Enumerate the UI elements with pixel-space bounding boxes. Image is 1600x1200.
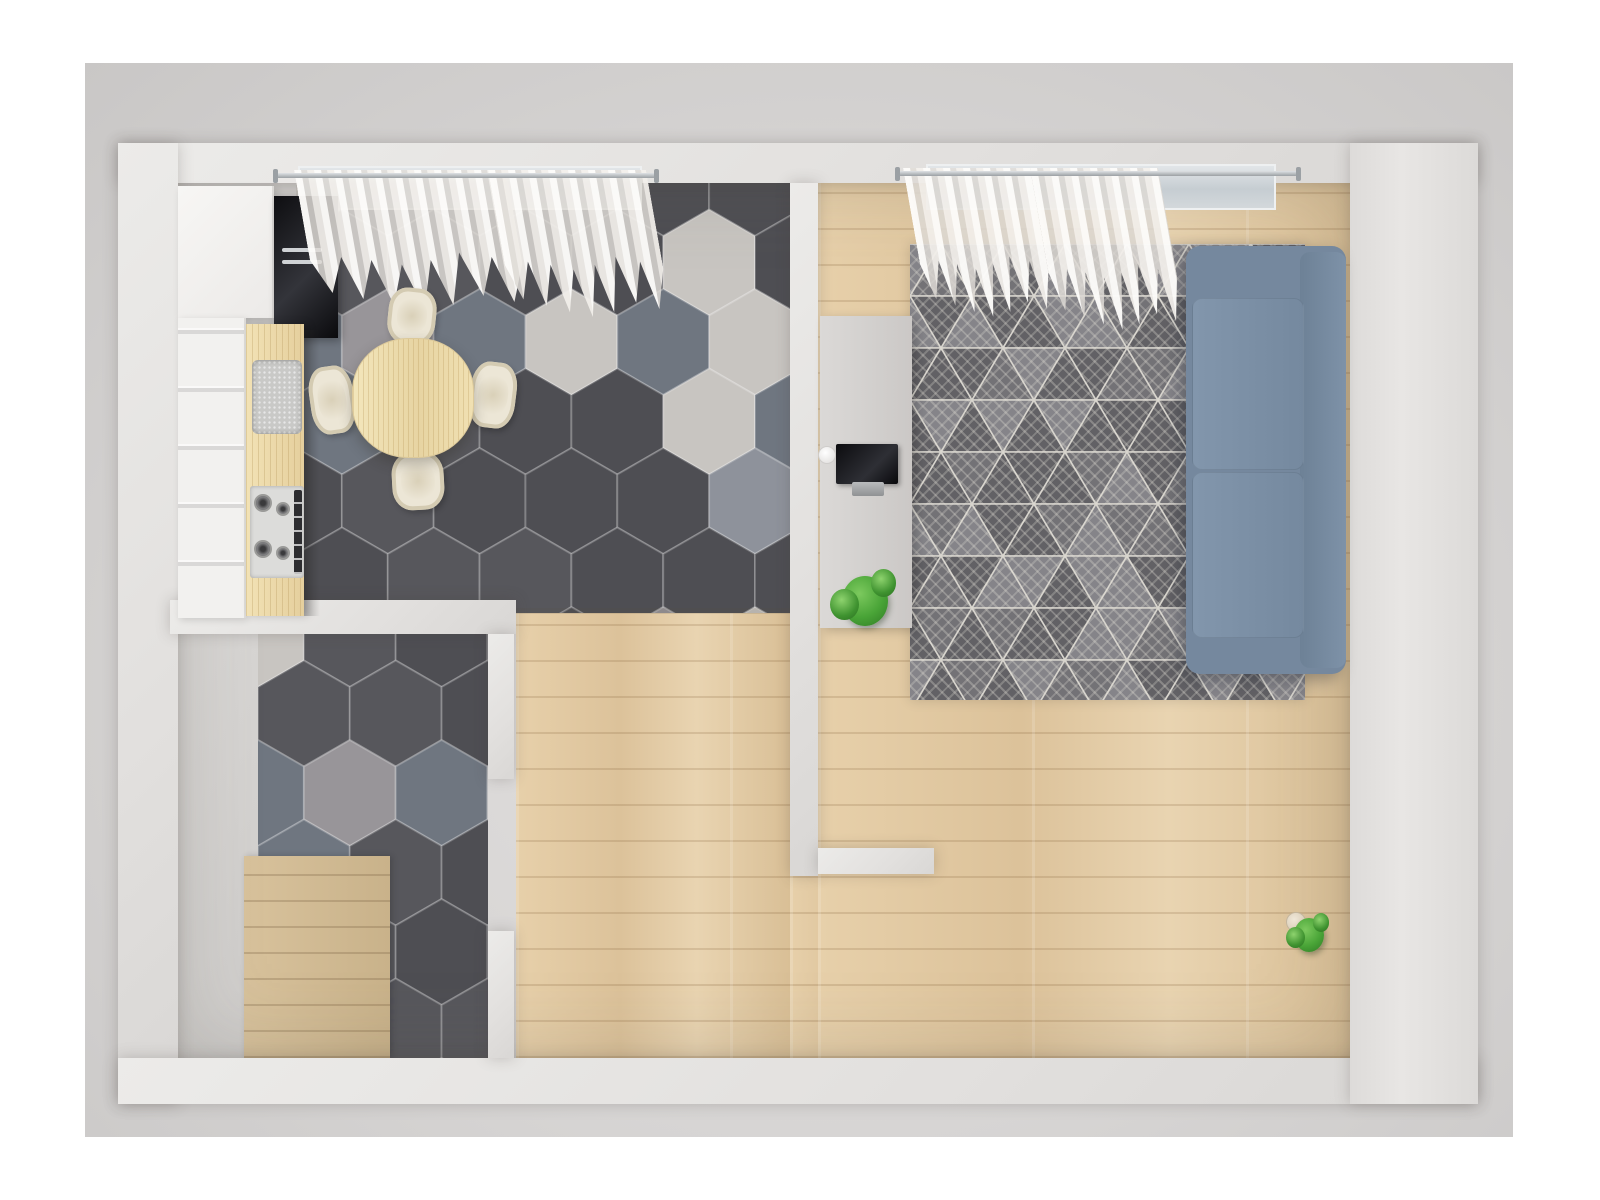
sofa-seat-cushion bbox=[1192, 472, 1304, 638]
gas-hob bbox=[250, 486, 304, 578]
shower-wood-floor bbox=[244, 856, 390, 1058]
burner bbox=[276, 502, 290, 516]
wall-bathroom-right-lower bbox=[488, 931, 514, 1058]
hallway-wood-floor bbox=[516, 613, 790, 1058]
wall-left bbox=[118, 143, 178, 1104]
floor-plan bbox=[0, 0, 1600, 1200]
dining-table bbox=[352, 338, 474, 458]
console-plant bbox=[842, 576, 888, 626]
burner bbox=[254, 540, 272, 558]
burner bbox=[276, 546, 290, 560]
tv-mount bbox=[852, 482, 884, 496]
kitchen-base-cabinets bbox=[178, 318, 246, 618]
dining-chair-bottom bbox=[391, 451, 446, 512]
floor-transition-strip bbox=[516, 608, 790, 614]
wall-bottom bbox=[118, 1058, 1478, 1104]
kitchen-sink bbox=[252, 360, 302, 434]
sofa-backrest bbox=[1300, 252, 1346, 668]
wall-hall-stub bbox=[818, 848, 934, 874]
hob-control-panel bbox=[294, 490, 302, 574]
living-curtain-rod bbox=[898, 171, 1298, 176]
burner bbox=[254, 494, 272, 512]
sofa-seat-cushion bbox=[1192, 298, 1304, 470]
kitchen-tall-cabinet bbox=[178, 186, 274, 318]
wall-bathroom-right-upper bbox=[488, 634, 514, 779]
wall-kitchen-living-divider bbox=[790, 183, 818, 876]
tv bbox=[836, 444, 898, 484]
kitchen-curtain-rod bbox=[276, 173, 656, 178]
desk-plant bbox=[1294, 918, 1324, 952]
wall-right bbox=[1350, 143, 1478, 1104]
round-speaker bbox=[818, 446, 836, 464]
